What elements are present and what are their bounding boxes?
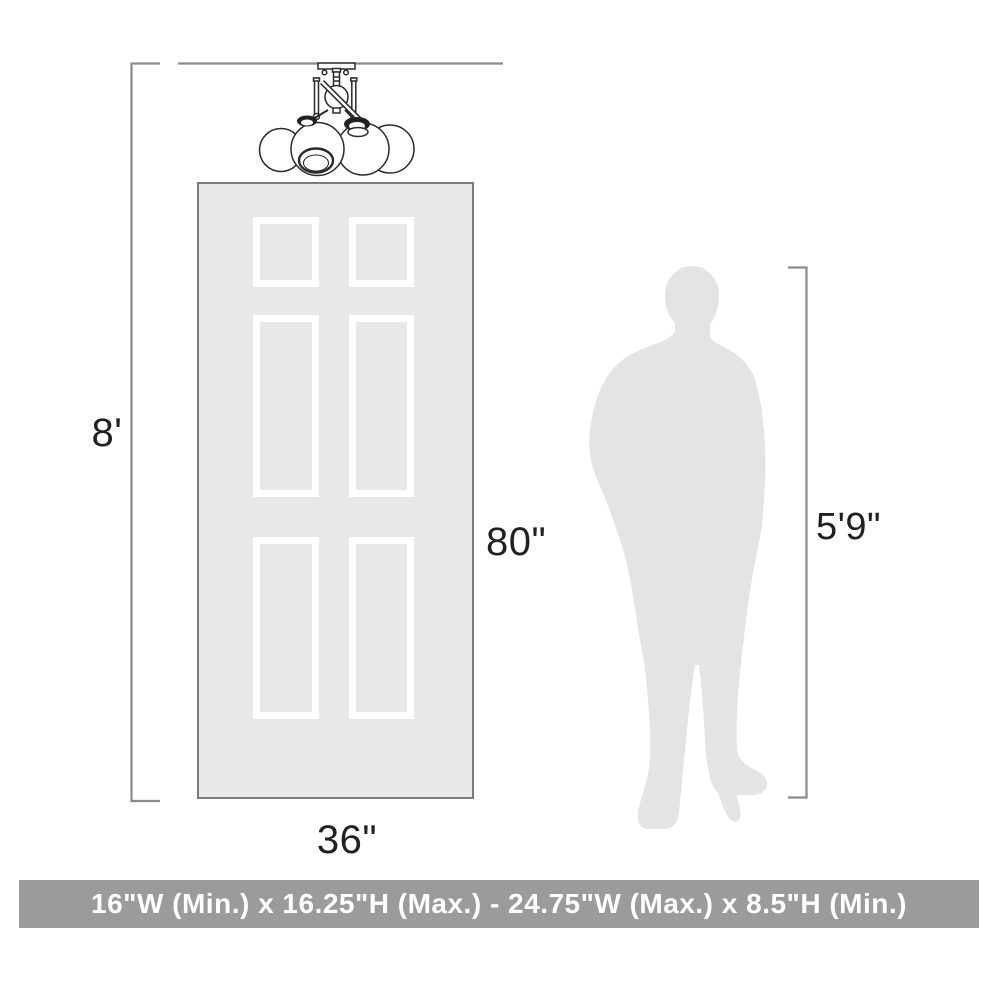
door-width-label: 36": [297, 819, 397, 861]
person-height-dimension-line: [788, 268, 807, 798]
door-graphic: [197, 182, 474, 799]
fixture-dimensions-text: 16"W (Min.) x 16.25"H (Max.) - 24.75"W (…: [91, 888, 907, 920]
diagram-art: [0, 0, 1000, 1000]
ceiling-height-label: 8': [82, 412, 132, 454]
door-height-label: 80": [486, 521, 546, 563]
door-panel: [349, 315, 414, 497]
fixture-canopy: [318, 63, 355, 69]
door-panel: [253, 315, 319, 497]
fixture-dimensions-banner: 16"W (Min.) x 16.25"H (Max.) - 24.75"W (…: [19, 880, 979, 928]
person-height-label: 5'9": [816, 508, 881, 548]
fixture-globe: [366, 125, 414, 173]
door-panel: [253, 537, 319, 719]
fixture-body: [325, 86, 348, 109]
fixture-globe: [260, 129, 303, 172]
door-panel: [349, 217, 414, 287]
ceiling-height-dimension-line: [132, 64, 161, 802]
door-panel: [253, 217, 319, 287]
size-guide-diagram: 8' 80" 36" 5'9" 16"W (Min.) x 16.25"H (M…: [0, 0, 1000, 1000]
fixture-globe: [291, 123, 344, 176]
fixture-globe: [337, 123, 389, 175]
person-silhouette: [589, 266, 767, 829]
door-panel: [349, 537, 414, 719]
light-fixture-graphic: [260, 63, 415, 176]
